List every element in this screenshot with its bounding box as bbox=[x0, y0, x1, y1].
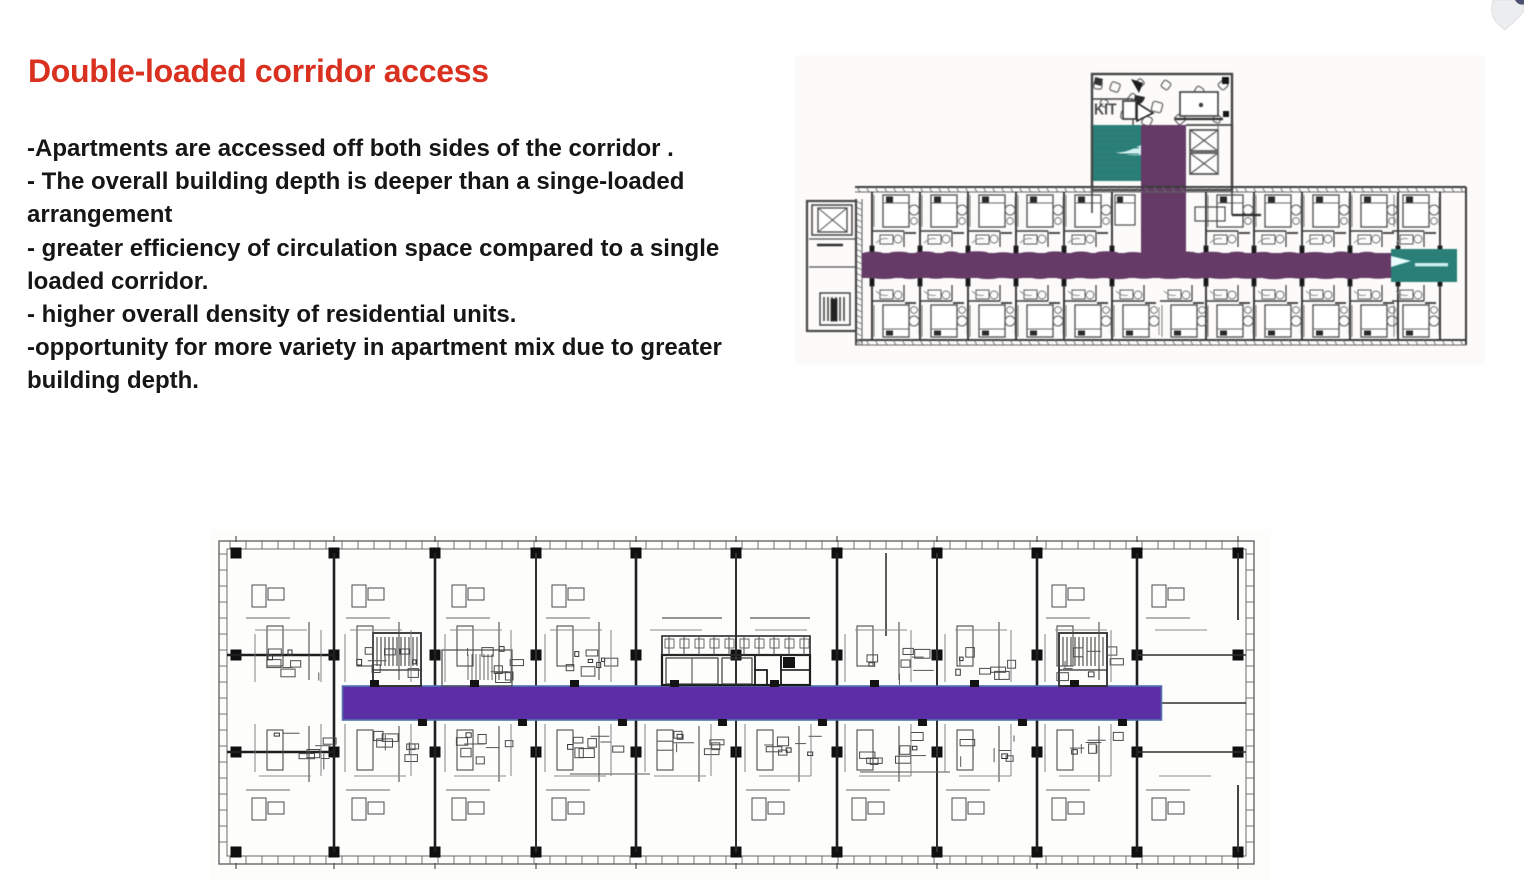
svg-text:KIT: KIT bbox=[1094, 102, 1117, 119]
